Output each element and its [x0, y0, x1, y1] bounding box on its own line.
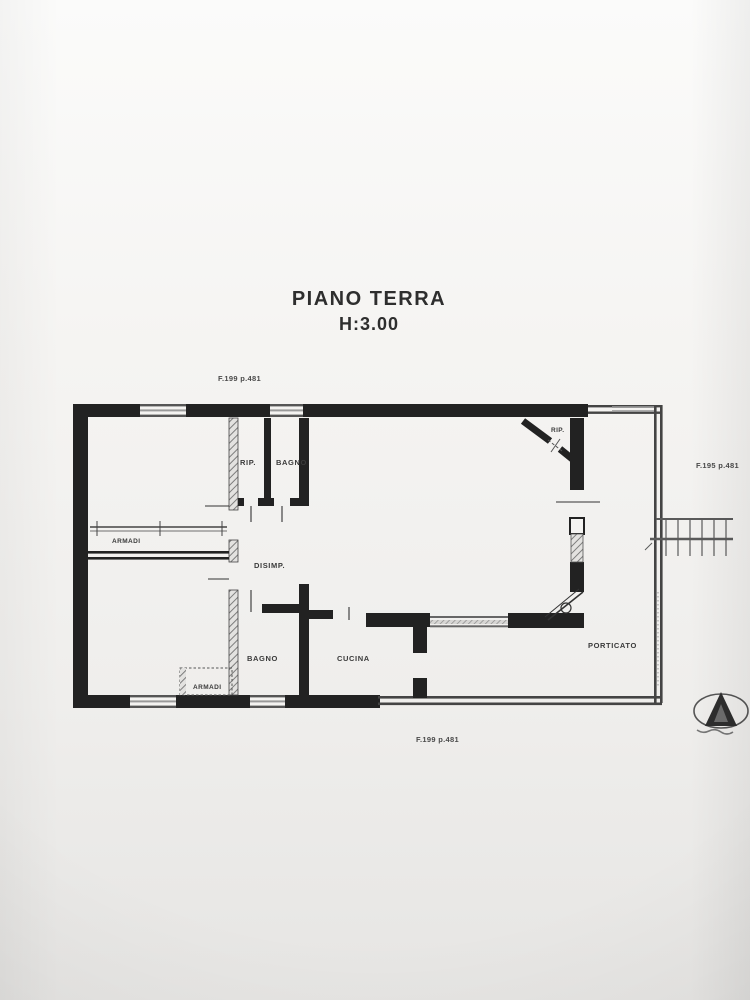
wall-rip-south — [238, 498, 244, 506]
plan-height-label: H:3.00 — [339, 314, 399, 334]
wall-cucina-east — [413, 678, 427, 698]
room-label-bagno-bottom: BAGNO — [247, 654, 278, 663]
window-symbol — [571, 534, 583, 562]
room-label-cucina: CUCINA — [337, 654, 370, 663]
wall-bagno2-north — [262, 604, 309, 613]
window-symbol — [270, 404, 303, 417]
window-symbol — [130, 695, 176, 708]
porch-edges — [378, 405, 663, 705]
wall-cucina-east — [413, 627, 427, 653]
wall-bedrooms-divider — [87, 557, 229, 560]
wall-bottom — [176, 695, 250, 708]
wall-cucina-stub — [309, 610, 333, 619]
parcel-ref-top: F.199 p.481 — [218, 374, 261, 383]
room-label-bagno-top: BAGNO — [276, 458, 307, 467]
floor-plan: PIANO TERRA H:3.00 F.199 p.481 F.195 p.4… — [0, 0, 750, 1000]
porch-right-edge — [654, 405, 657, 703]
wall-top — [186, 404, 270, 417]
external-stairs — [645, 519, 733, 556]
porch-right-edge — [660, 405, 663, 703]
wall-living-south — [508, 613, 584, 628]
wall-spine-hatched — [229, 540, 238, 562]
wall-bottom — [73, 695, 130, 708]
room-label-armadi-top: ARMADI — [112, 538, 140, 545]
wall-top — [73, 404, 140, 417]
room-label-rip-corner: RIP. — [551, 427, 564, 434]
window-symbol — [140, 404, 186, 417]
room-label-rip-top: RIP. — [240, 458, 256, 467]
wall-rip-south — [258, 498, 274, 506]
wall-rip-bagno — [264, 418, 271, 506]
logo-stamp — [694, 692, 748, 734]
wall-spine-hatched — [229, 418, 238, 510]
pilaster — [570, 518, 584, 534]
wall-living-east — [570, 562, 584, 592]
wall-rip-south — [290, 498, 309, 506]
wall-left — [73, 404, 88, 708]
interior-walls — [87, 418, 584, 698]
wall-living-east — [570, 418, 584, 490]
wall-cucina-north — [366, 613, 430, 627]
parcel-ref-right: F.195 p.481 — [696, 461, 739, 470]
plan-title: PIANO TERRA — [292, 288, 446, 310]
window-symbol — [250, 695, 285, 708]
scanned-floorplan-photo: PIANO TERRA H:3.00 F.199 p.481 F.195 p.4… — [0, 0, 750, 1000]
outer-walls — [73, 404, 588, 708]
wall-bedrooms-divider — [87, 551, 229, 554]
logo-text-marks — [697, 730, 733, 734]
porch-bottom-edge — [378, 703, 662, 706]
wall-spine-hatched — [229, 590, 238, 695]
sliding-glass-door — [430, 616, 508, 627]
room-label-disimpegno: DISIMP. — [254, 561, 285, 570]
wall-spine2 — [299, 584, 309, 695]
wall-top — [303, 404, 588, 417]
room-label-armadi-bottom: ARMADI — [193, 684, 221, 691]
room-label-porticato: PORTICATO — [588, 641, 637, 650]
wall-bottom — [285, 695, 380, 708]
parcel-ref-bottom: F.199 p.481 — [416, 735, 459, 744]
closet-symbol-bedroom1 — [90, 521, 227, 536]
